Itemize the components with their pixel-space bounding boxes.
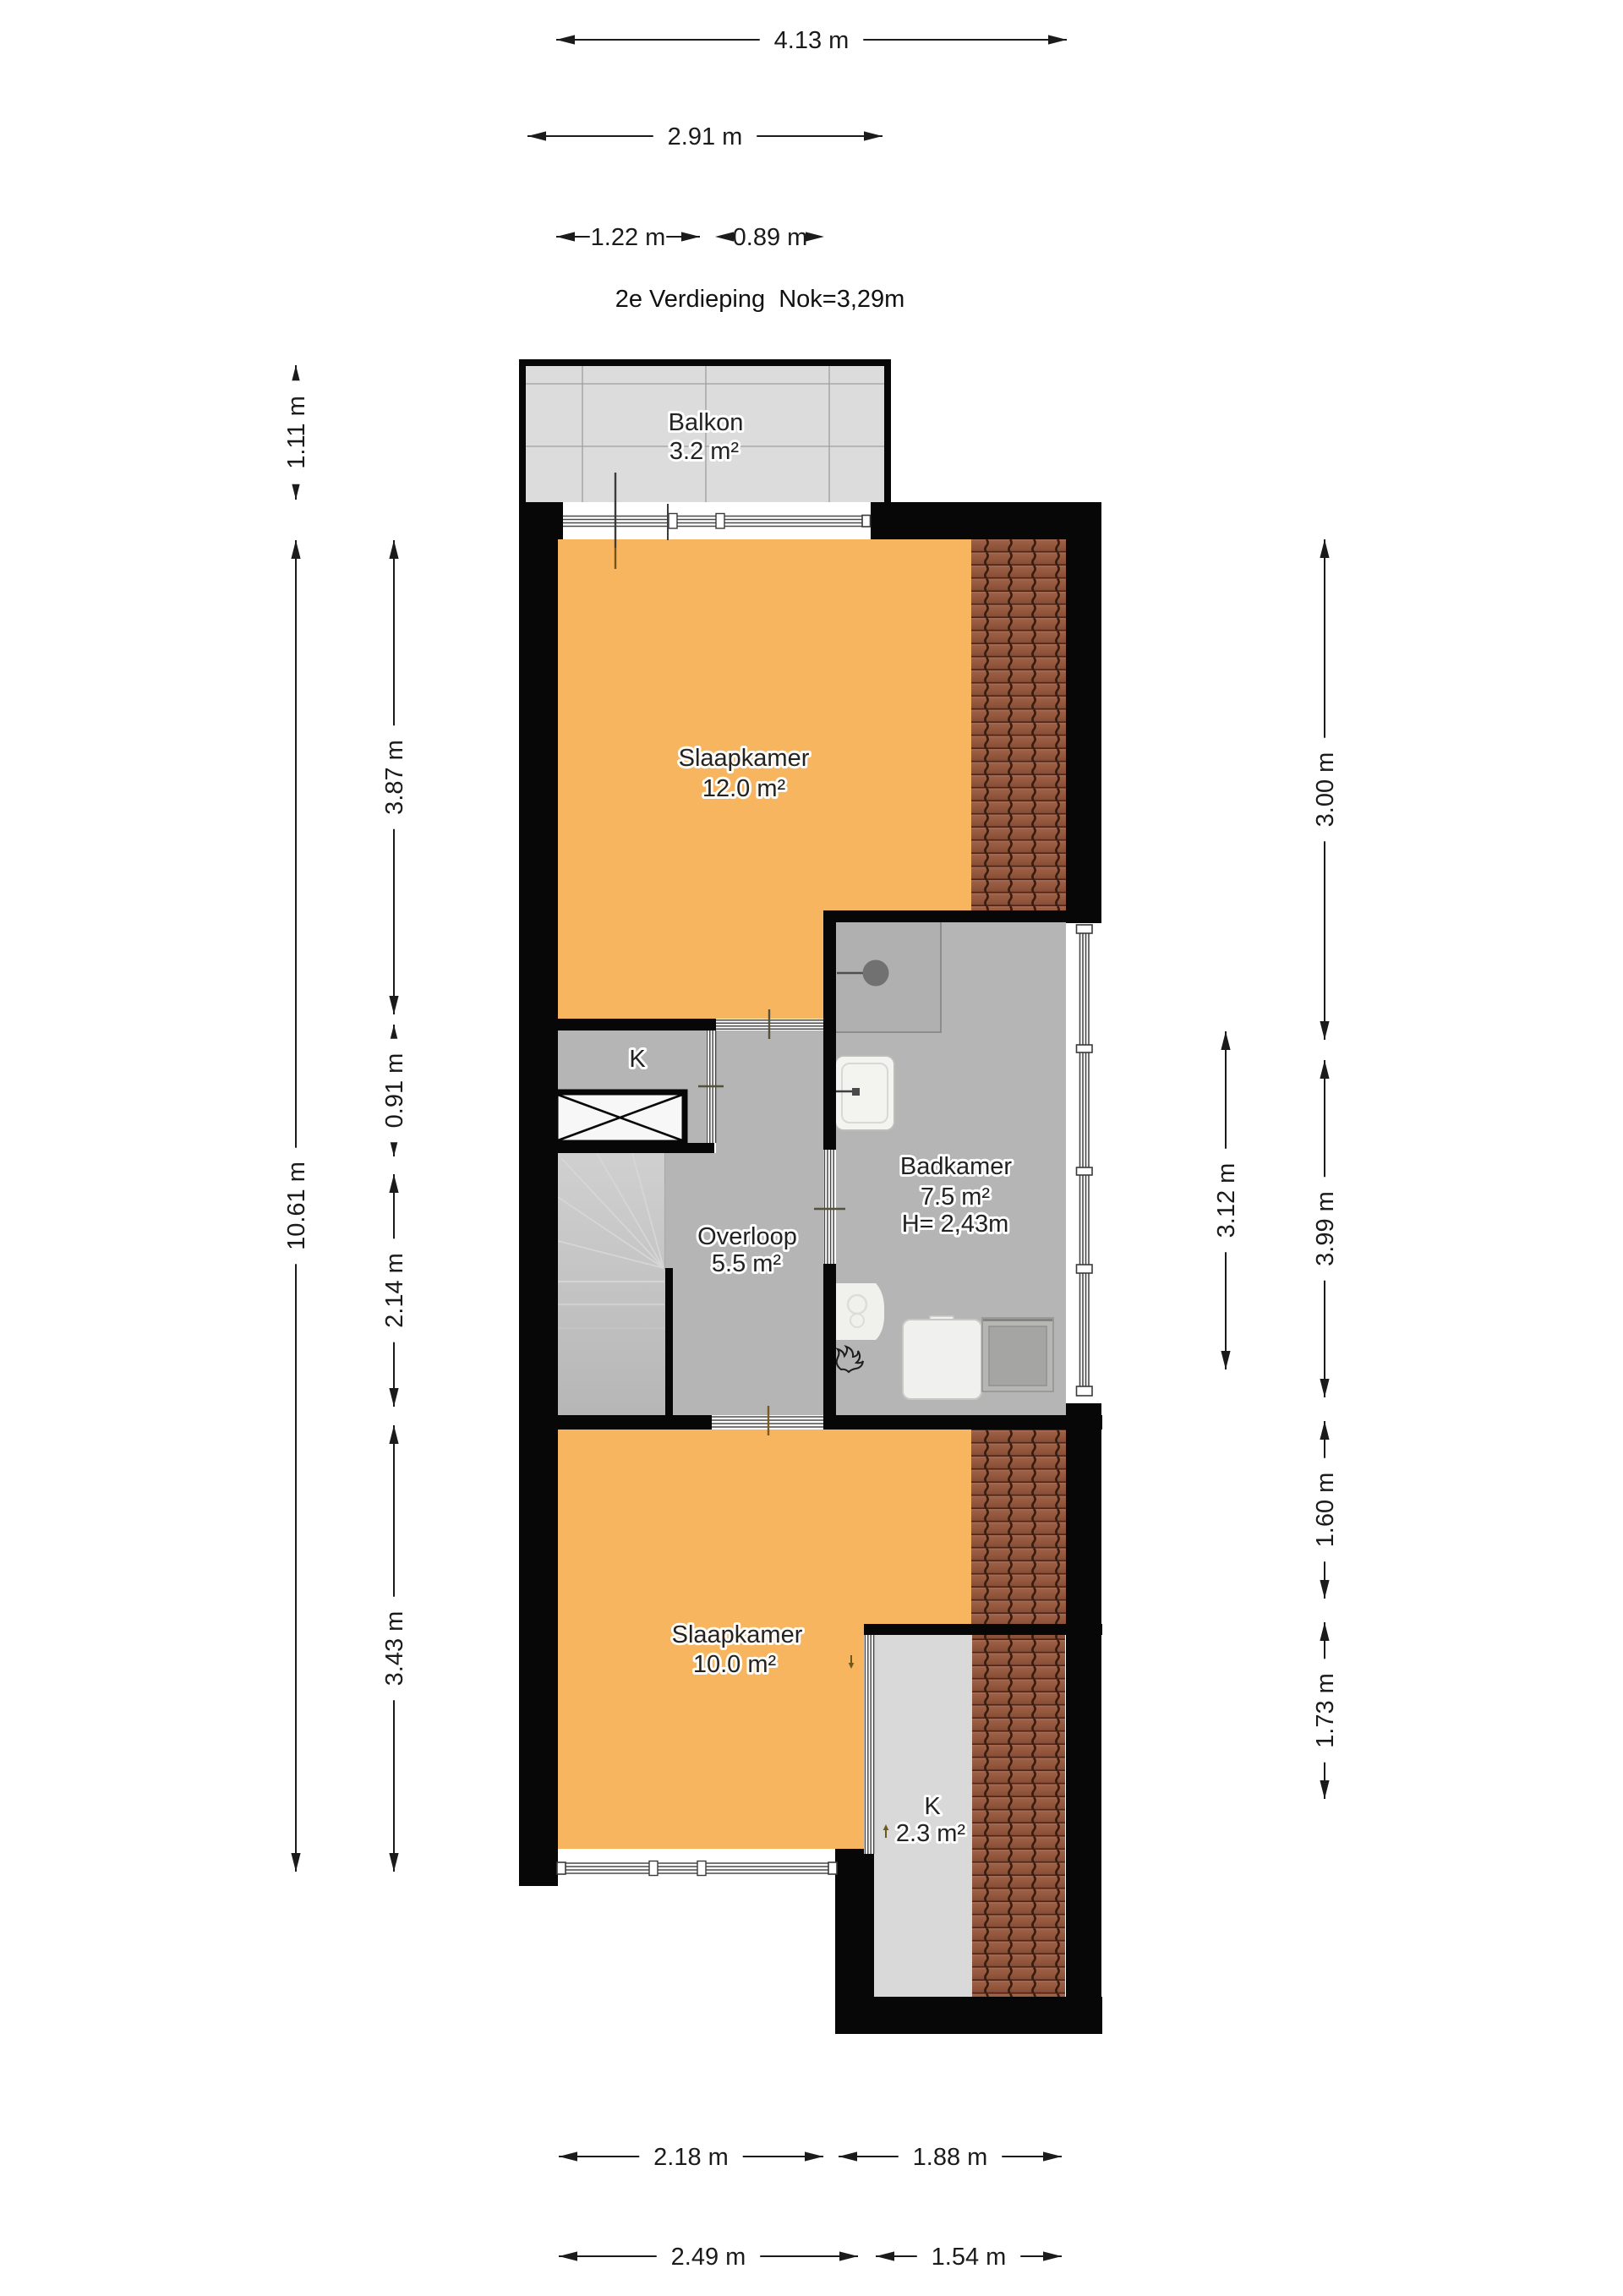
svg-text:0.91 m: 0.91 m xyxy=(381,1053,408,1129)
svg-text:Balkon: Balkon xyxy=(669,409,744,436)
svg-text:0.89 m: 0.89 m xyxy=(733,224,808,251)
svg-text:2.18 m: 2.18 m xyxy=(653,2144,729,2171)
svg-text:Overloop: Overloop xyxy=(697,1223,797,1250)
svg-text:2.3 m²: 2.3 m² xyxy=(896,1820,966,1847)
svg-text:1.54 m: 1.54 m xyxy=(932,2244,1007,2271)
svg-text:5.5 m²: 5.5 m² xyxy=(712,1250,782,1277)
svg-text:3.00 m: 3.00 m xyxy=(1312,752,1339,828)
svg-text:Slaapkamer: Slaapkamer xyxy=(672,1621,803,1648)
svg-text:3.43 m: 3.43 m xyxy=(381,1611,408,1686)
svg-text:H= 2,43m: H= 2,43m xyxy=(902,1211,1009,1238)
svg-text:3.87 m: 3.87 m xyxy=(381,740,408,815)
svg-text:1.60 m: 1.60 m xyxy=(1312,1473,1339,1548)
svg-text:1.11 m: 1.11 m xyxy=(283,396,310,469)
svg-text:Badkamer: Badkamer xyxy=(900,1153,1013,1180)
svg-text:2e Verdieping Nok=3,29m: 2e Verdieping Nok=3,29m xyxy=(615,286,905,313)
svg-text:1.88 m: 1.88 m xyxy=(913,2144,988,2171)
svg-text:Slaapkamer: Slaapkamer xyxy=(679,745,810,772)
svg-text:K: K xyxy=(924,1793,941,1820)
svg-text:K: K xyxy=(629,1046,646,1073)
svg-text:2.49 m: 2.49 m xyxy=(671,2244,746,2271)
svg-text:7.5 m²: 7.5 m² xyxy=(921,1184,991,1211)
svg-text:1.22 m: 1.22 m xyxy=(591,224,666,251)
svg-text:2.14 m: 2.14 m xyxy=(381,1253,408,1328)
svg-text:3.12 m: 3.12 m xyxy=(1213,1163,1240,1238)
svg-text:12.0 m²: 12.0 m² xyxy=(702,775,786,802)
svg-text:1.73 m: 1.73 m xyxy=(1312,1673,1339,1748)
svg-text:10.61 m: 10.61 m xyxy=(283,1162,310,1250)
svg-text:2.91 m: 2.91 m xyxy=(668,123,743,150)
svg-text:10.0 m²: 10.0 m² xyxy=(693,1651,777,1678)
svg-text:3.99 m: 3.99 m xyxy=(1312,1191,1339,1266)
svg-text:4.13 m: 4.13 m xyxy=(774,27,850,54)
svg-text:3.2 m²: 3.2 m² xyxy=(669,438,740,465)
